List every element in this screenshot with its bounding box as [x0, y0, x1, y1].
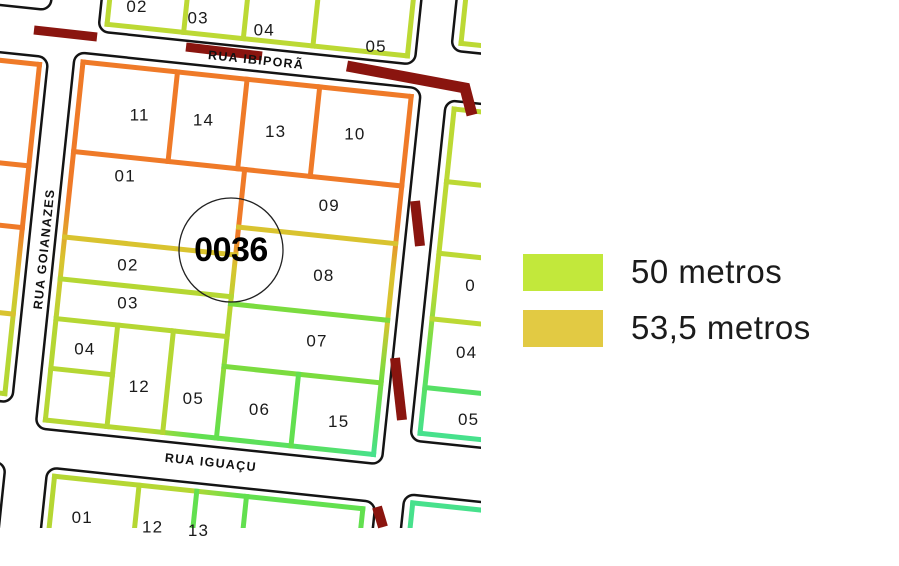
street-measure-dash [34, 30, 97, 37]
lot-label-07: 07 [306, 331, 327, 350]
block-top-left-corner [0, 0, 57, 10]
map-canvas: RUA IBIPORÃRUA GOIANAZESRUA IGUAÇU111413… [0, 0, 481, 566]
lot-label-13: 13 [265, 122, 286, 141]
lot-label-0: 0 [465, 276, 476, 295]
street-measure-dash [395, 358, 402, 420]
lot-label-11: 11 [130, 106, 150, 125]
lot-label-05: 05 [458, 410, 479, 429]
lot-label-04: 04 [254, 20, 275, 39]
legend-row: 53,5 metros [523, 309, 811, 347]
block-id-label: 0036 [194, 231, 268, 269]
map-bottom-margin [0, 528, 481, 566]
lot-label-12: 12 [142, 517, 163, 536]
legend-swatch-53m [523, 310, 603, 347]
page: RUA IBIPORÃRUA GOIANAZESRUA IGUAÇU111413… [0, 0, 899, 566]
legend-label-50m: 50 metros [631, 253, 782, 291]
lot-label-12: 12 [129, 377, 150, 396]
lot-label-01: 01 [72, 508, 93, 527]
legend-row: 50 metros [523, 253, 811, 291]
street-label-rua-iguacu: RUA IGUAÇU [164, 451, 257, 475]
lot-label-01: 01 [115, 167, 136, 186]
lot-label-04: 04 [74, 339, 95, 358]
lot-label-08: 08 [313, 266, 334, 285]
street-measure-dash [377, 507, 383, 527]
blocks-layer [0, 0, 481, 566]
lot-label-14: 14 [193, 110, 214, 129]
lot-label-02: 02 [117, 255, 138, 274]
legend: 50 metros 53,5 metros [523, 253, 811, 365]
lot-label-03: 03 [187, 8, 208, 27]
lot-label-05: 05 [183, 389, 204, 408]
lot-label-06: 06 [249, 400, 270, 419]
lot-label-15: 15 [328, 412, 349, 431]
lot-label-09: 09 [319, 196, 340, 215]
legend-label-53m: 53,5 metros [631, 309, 811, 347]
lot-label-04: 04 [456, 343, 477, 362]
lot-label-03: 03 [117, 294, 138, 313]
legend-swatch-50m [523, 254, 603, 291]
street-measure-dash [415, 201, 420, 246]
lot-label-05: 05 [365, 37, 386, 56]
lot-label-13: 13 [188, 521, 209, 540]
lot-label-10: 10 [344, 124, 365, 143]
lot-label-02: 02 [126, 0, 147, 16]
